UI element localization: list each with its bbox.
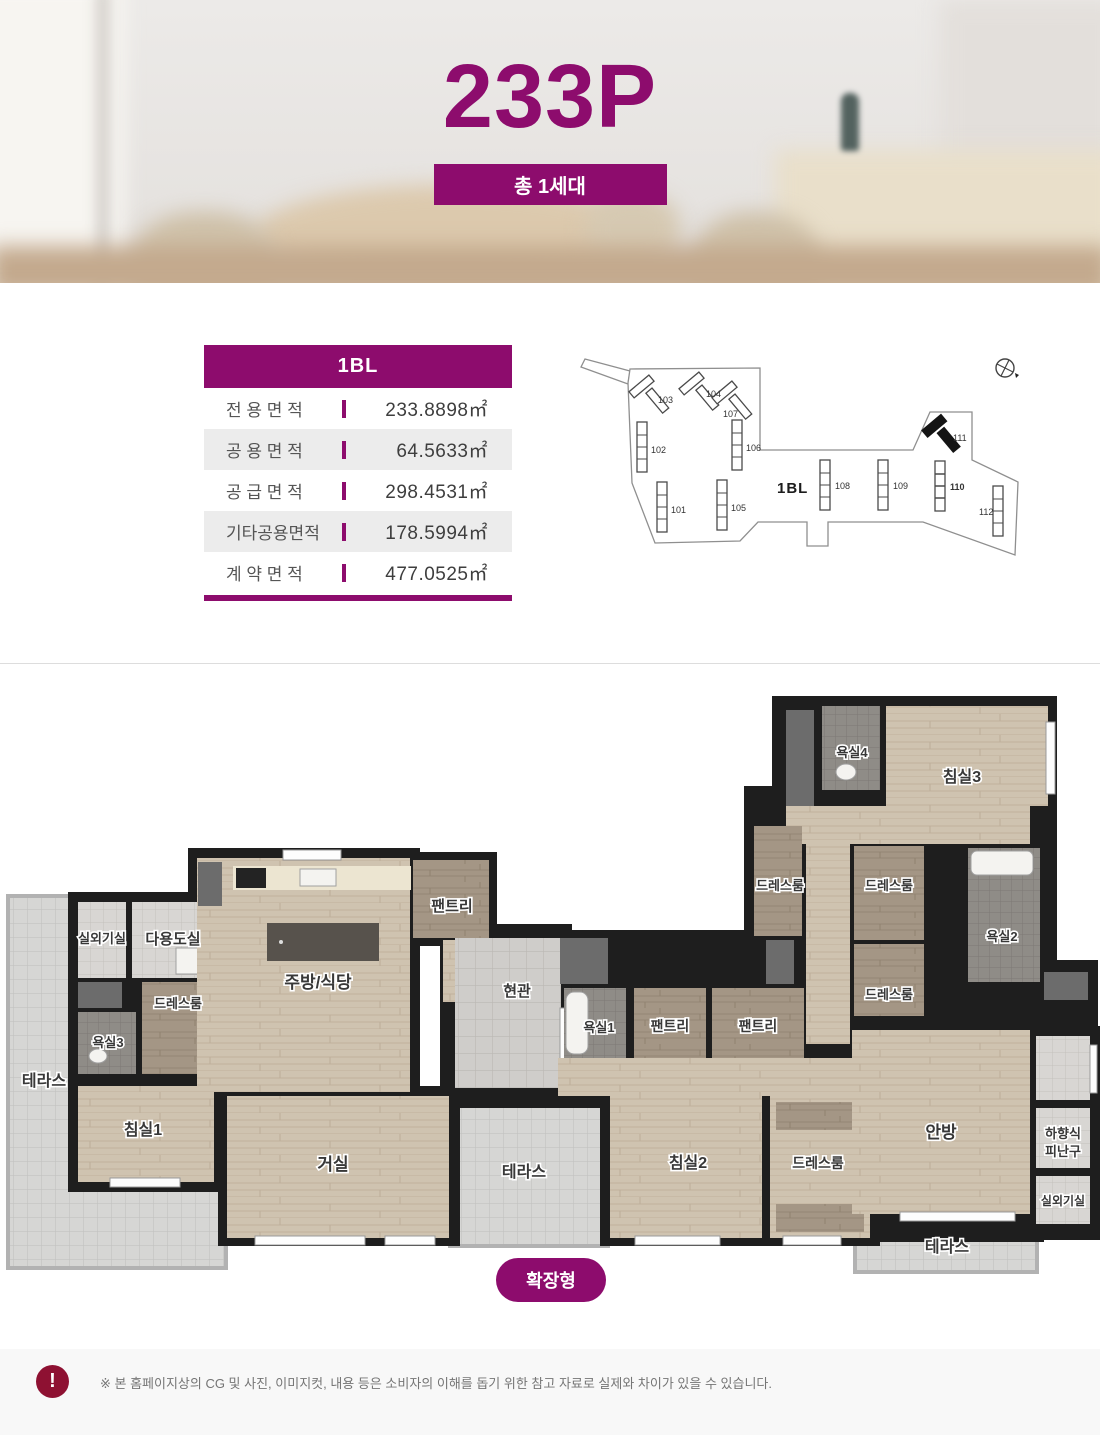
disclaimer-text: ※ 본 홈페이지상의 CG 및 사진, 이미지컷, 내용 등은 소비자의 이해를… bbox=[100, 1349, 772, 1415]
unit-type-title: 233P bbox=[443, 52, 657, 142]
shaft bbox=[1044, 972, 1088, 1000]
building-105 bbox=[717, 480, 727, 530]
room-label-pantry1: 팬트리 bbox=[651, 1018, 690, 1034]
block-label: 1BL bbox=[777, 480, 808, 497]
kitchen-island bbox=[267, 923, 379, 961]
room-label-pantry-kitchen: 팬트리 bbox=[431, 898, 472, 915]
building-label: 102 bbox=[651, 445, 666, 455]
room-label-dress-bottom: 드레스룸 bbox=[792, 1155, 844, 1171]
table-row: 계 약 면 적 477.0525㎡ bbox=[204, 552, 512, 593]
area-value: 178.5994㎡ bbox=[346, 518, 512, 545]
cooktop-icon bbox=[236, 868, 266, 888]
room-label-bath2: 욕실2 bbox=[986, 929, 1017, 944]
room-label-dress-w3: 드레스룸 bbox=[865, 987, 913, 1002]
window bbox=[900, 1212, 1015, 1221]
area-value: 477.0525㎡ bbox=[346, 559, 512, 586]
table-row: 기타공용면적 178.5994㎡ bbox=[204, 511, 512, 552]
sink-icon bbox=[300, 869, 336, 886]
room-label-outdoor-left: 실외기실 bbox=[78, 931, 126, 946]
window bbox=[110, 1178, 180, 1187]
building-label: 112 bbox=[979, 507, 993, 517]
room-label-dress-left: 드레스룸 bbox=[154, 996, 202, 1011]
shaft bbox=[560, 938, 608, 984]
building-112 bbox=[993, 486, 1003, 536]
room-label-pantry2: 팬트리 bbox=[739, 1018, 778, 1034]
room-dressroom-w3 bbox=[854, 944, 924, 1016]
bathtub-icon bbox=[971, 851, 1033, 875]
shaft bbox=[766, 940, 794, 984]
building-label: 101 bbox=[671, 505, 686, 515]
expansion-type-badge: 확장형 bbox=[496, 1258, 606, 1302]
floor-plan: 실외기실 다용도실 팬트리 주방/식당 현관 드레스룸 욕실3 테라스 침실1 … bbox=[0, 690, 1100, 1280]
wardrobe bbox=[776, 1204, 864, 1232]
room-label-living: 거실 bbox=[317, 1155, 348, 1174]
page: 233P 총 1세대 1BL 전 용 면 적 233.8898㎡ 공 용 면 적… bbox=[0, 0, 1100, 1435]
hall-corridor bbox=[558, 1058, 884, 1096]
site-plan: 103 104 107 102 106 101 105 108 109 110 … bbox=[555, 335, 1040, 575]
room-label-dress-w2: 드레스룸 bbox=[865, 878, 913, 893]
hall-wing bbox=[786, 806, 1030, 844]
wardrobe bbox=[776, 1102, 864, 1130]
building-102 bbox=[637, 422, 647, 472]
table-row: 전 용 면 적 233.8898㎡ bbox=[204, 388, 512, 429]
room-label-escape-line2: 피난구 bbox=[1045, 1144, 1081, 1159]
building-label: 106 bbox=[746, 443, 761, 453]
building-label: 104 bbox=[706, 389, 721, 399]
building-108 bbox=[820, 460, 830, 510]
table-row: 공 급 면 적 298.4531㎡ bbox=[204, 470, 512, 511]
building-110 bbox=[935, 461, 945, 511]
room-label-dress-w1: 드레스룸 bbox=[756, 878, 804, 893]
room-label-bath1: 욕실1 bbox=[583, 1020, 614, 1035]
area-label: 기타공용면적 bbox=[204, 519, 342, 544]
room-label-bedroom3: 침실3 bbox=[943, 767, 981, 786]
compass-icon bbox=[996, 359, 1019, 378]
section-divider bbox=[0, 663, 1100, 664]
area-value: 233.8898㎡ bbox=[346, 395, 512, 422]
room-label-outdoor-right: 실외기실 bbox=[1041, 1193, 1085, 1208]
site-road bbox=[581, 359, 630, 384]
room-label-entrance: 현관 bbox=[503, 983, 531, 1000]
room-entrance bbox=[455, 938, 561, 1088]
shaft bbox=[78, 982, 122, 1008]
building-109 bbox=[878, 460, 888, 510]
room-label-bath4: 욕실4 bbox=[836, 745, 868, 760]
room-master bbox=[852, 1030, 1030, 1214]
hall-wing-vertical bbox=[806, 844, 850, 1044]
table-row: 공 용 면 적 64.5633㎡ bbox=[204, 429, 512, 470]
area-value: 64.5633㎡ bbox=[346, 436, 512, 463]
island-detail bbox=[279, 940, 283, 944]
area-table: 1BL 전 용 면 적 233.8898㎡ 공 용 면 적 64.5633㎡ 공… bbox=[204, 345, 512, 601]
building-label: 110 bbox=[950, 482, 965, 492]
window bbox=[635, 1236, 720, 1245]
toilet-icon bbox=[89, 1049, 107, 1063]
room-side-tile bbox=[1036, 1036, 1090, 1100]
shaft bbox=[786, 710, 814, 806]
room-label-escape-line1: 하향식 bbox=[1045, 1126, 1081, 1141]
room-label-bath3: 욕실3 bbox=[92, 1035, 123, 1050]
building-label: 108 bbox=[835, 481, 850, 491]
room-label-terrace-right: 테라스 bbox=[925, 1238, 969, 1256]
window bbox=[783, 1236, 841, 1245]
window bbox=[1090, 1045, 1097, 1093]
shaft bbox=[198, 862, 222, 906]
room-label-bedroom1: 침실1 bbox=[124, 1120, 162, 1139]
building-101 bbox=[657, 482, 667, 532]
area-value: 298.4531㎡ bbox=[346, 477, 512, 504]
room-bedroom3 bbox=[886, 706, 1048, 806]
building-label: 107 bbox=[723, 409, 738, 419]
room-label-master: 안방 bbox=[925, 1123, 957, 1142]
toilet-icon bbox=[836, 764, 856, 780]
building-label: 109 bbox=[893, 481, 908, 491]
window bbox=[1046, 722, 1055, 794]
room-label-bedroom2: 침실2 bbox=[669, 1153, 707, 1172]
table-bottom-bar bbox=[204, 595, 512, 601]
household-count-badge: 총 1세대 bbox=[434, 164, 667, 205]
footer-disclaimer-bar: ! ※ 본 홈페이지상의 CG 및 사진, 이미지컷, 내용 등은 소비자의 이… bbox=[0, 1349, 1100, 1435]
area-table-header: 1BL bbox=[204, 345, 512, 388]
room-label-terrace-left: 테라스 bbox=[22, 1072, 66, 1090]
area-label: 공 급 면 적 bbox=[204, 478, 342, 503]
room-dressroom-w2 bbox=[854, 846, 924, 940]
building-label: 111 bbox=[953, 433, 967, 443]
room-label-kitchen: 주방/식당 bbox=[284, 973, 352, 992]
building-106 bbox=[732, 420, 742, 470]
building-label: 105 bbox=[731, 503, 746, 513]
area-label: 공 용 면 적 bbox=[204, 437, 342, 462]
building-label: 103 bbox=[658, 395, 673, 405]
window bbox=[255, 1236, 365, 1245]
window bbox=[283, 850, 341, 860]
room-label-utility: 다용도실 bbox=[145, 931, 200, 948]
alert-icon: ! bbox=[36, 1365, 69, 1398]
window bbox=[385, 1236, 435, 1245]
room-label-terrace-center: 테라스 bbox=[502, 1163, 546, 1181]
area-label: 계 약 면 적 bbox=[204, 560, 342, 585]
hero-banner: 233P 총 1세대 bbox=[0, 0, 1100, 283]
area-label: 전 용 면 적 bbox=[204, 396, 342, 421]
